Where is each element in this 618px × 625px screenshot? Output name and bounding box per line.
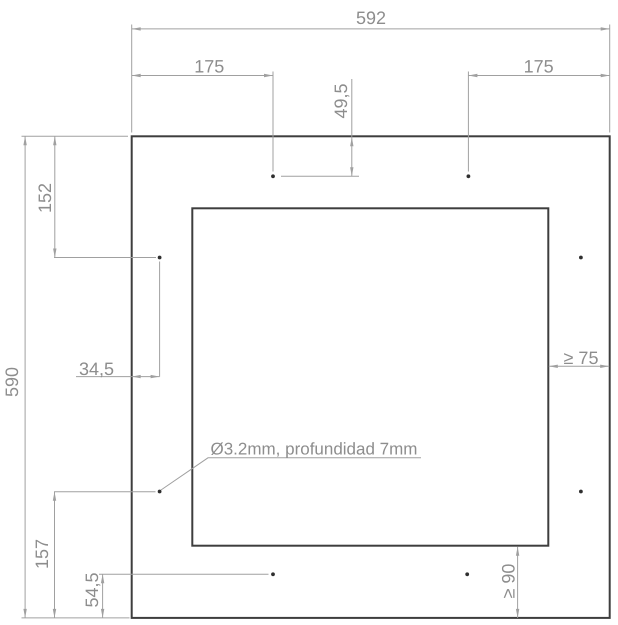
svg-text:Ø3.2mm, profundidad 7mm: Ø3.2mm, profundidad 7mm <box>211 440 418 459</box>
svg-text:175: 175 <box>194 57 224 77</box>
svg-text:49,5: 49,5 <box>331 83 351 118</box>
svg-text:≥ 90: ≥ 90 <box>499 564 519 599</box>
svg-text:34,5: 34,5 <box>79 359 114 379</box>
svg-text:152: 152 <box>35 183 55 213</box>
svg-text:592: 592 <box>356 8 386 28</box>
svg-text:590: 590 <box>2 367 22 397</box>
svg-text:157: 157 <box>32 539 52 569</box>
svg-text:≥ 75: ≥ 75 <box>564 348 599 368</box>
svg-text:54,5: 54,5 <box>82 572 102 607</box>
svg-text:175: 175 <box>524 57 554 77</box>
